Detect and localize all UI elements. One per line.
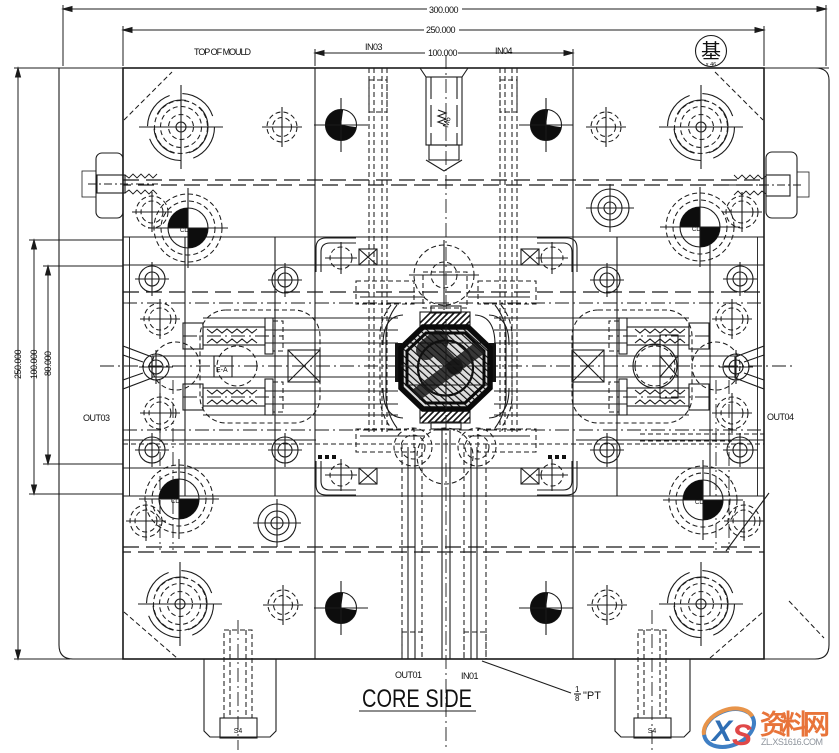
svg-text:ZL.XS1616.COM: ZL.XS1616.COM xyxy=(761,737,823,747)
svg-text:IN04: IN04 xyxy=(495,46,513,56)
svg-text:8: 8 xyxy=(575,694,580,703)
svg-text:IN03: IN03 xyxy=(365,42,383,52)
svg-text:x 46: x 46 xyxy=(706,62,716,68)
svg-text:250.000: 250.000 xyxy=(426,25,456,35)
svg-text:IN01: IN01 xyxy=(461,671,479,681)
svg-text:S4: S4 xyxy=(648,728,657,735)
svg-text:资料网: 资料网 xyxy=(760,710,830,740)
svg-text:300.000: 300.000 xyxy=(429,5,459,15)
svg-text:TOP OF MOULD: TOP OF MOULD xyxy=(194,47,252,57)
svg-text:250.000: 250.000 xyxy=(13,349,23,379)
svg-text:S: S xyxy=(732,719,752,752)
svg-text:OUT03: OUT03 xyxy=(83,413,110,423)
svg-text:OUT04: OUT04 xyxy=(767,412,794,422)
svg-text:"PT: "PT xyxy=(583,690,601,702)
svg-text:E-A: E-A xyxy=(216,367,228,374)
svg-text:S4: S4 xyxy=(234,728,243,735)
svg-text:100.000: 100.000 xyxy=(29,349,39,379)
svg-text:OUT01: OUT01 xyxy=(395,670,422,680)
svg-text:基: 基 xyxy=(701,40,721,63)
svg-text:100.000: 100.000 xyxy=(428,48,458,58)
svg-text:1: 1 xyxy=(575,685,580,694)
svg-text:80.000: 80.000 xyxy=(43,351,53,376)
svg-text:CORE SIDE: CORE SIDE xyxy=(362,685,472,713)
svg-text:X: X xyxy=(710,715,734,748)
